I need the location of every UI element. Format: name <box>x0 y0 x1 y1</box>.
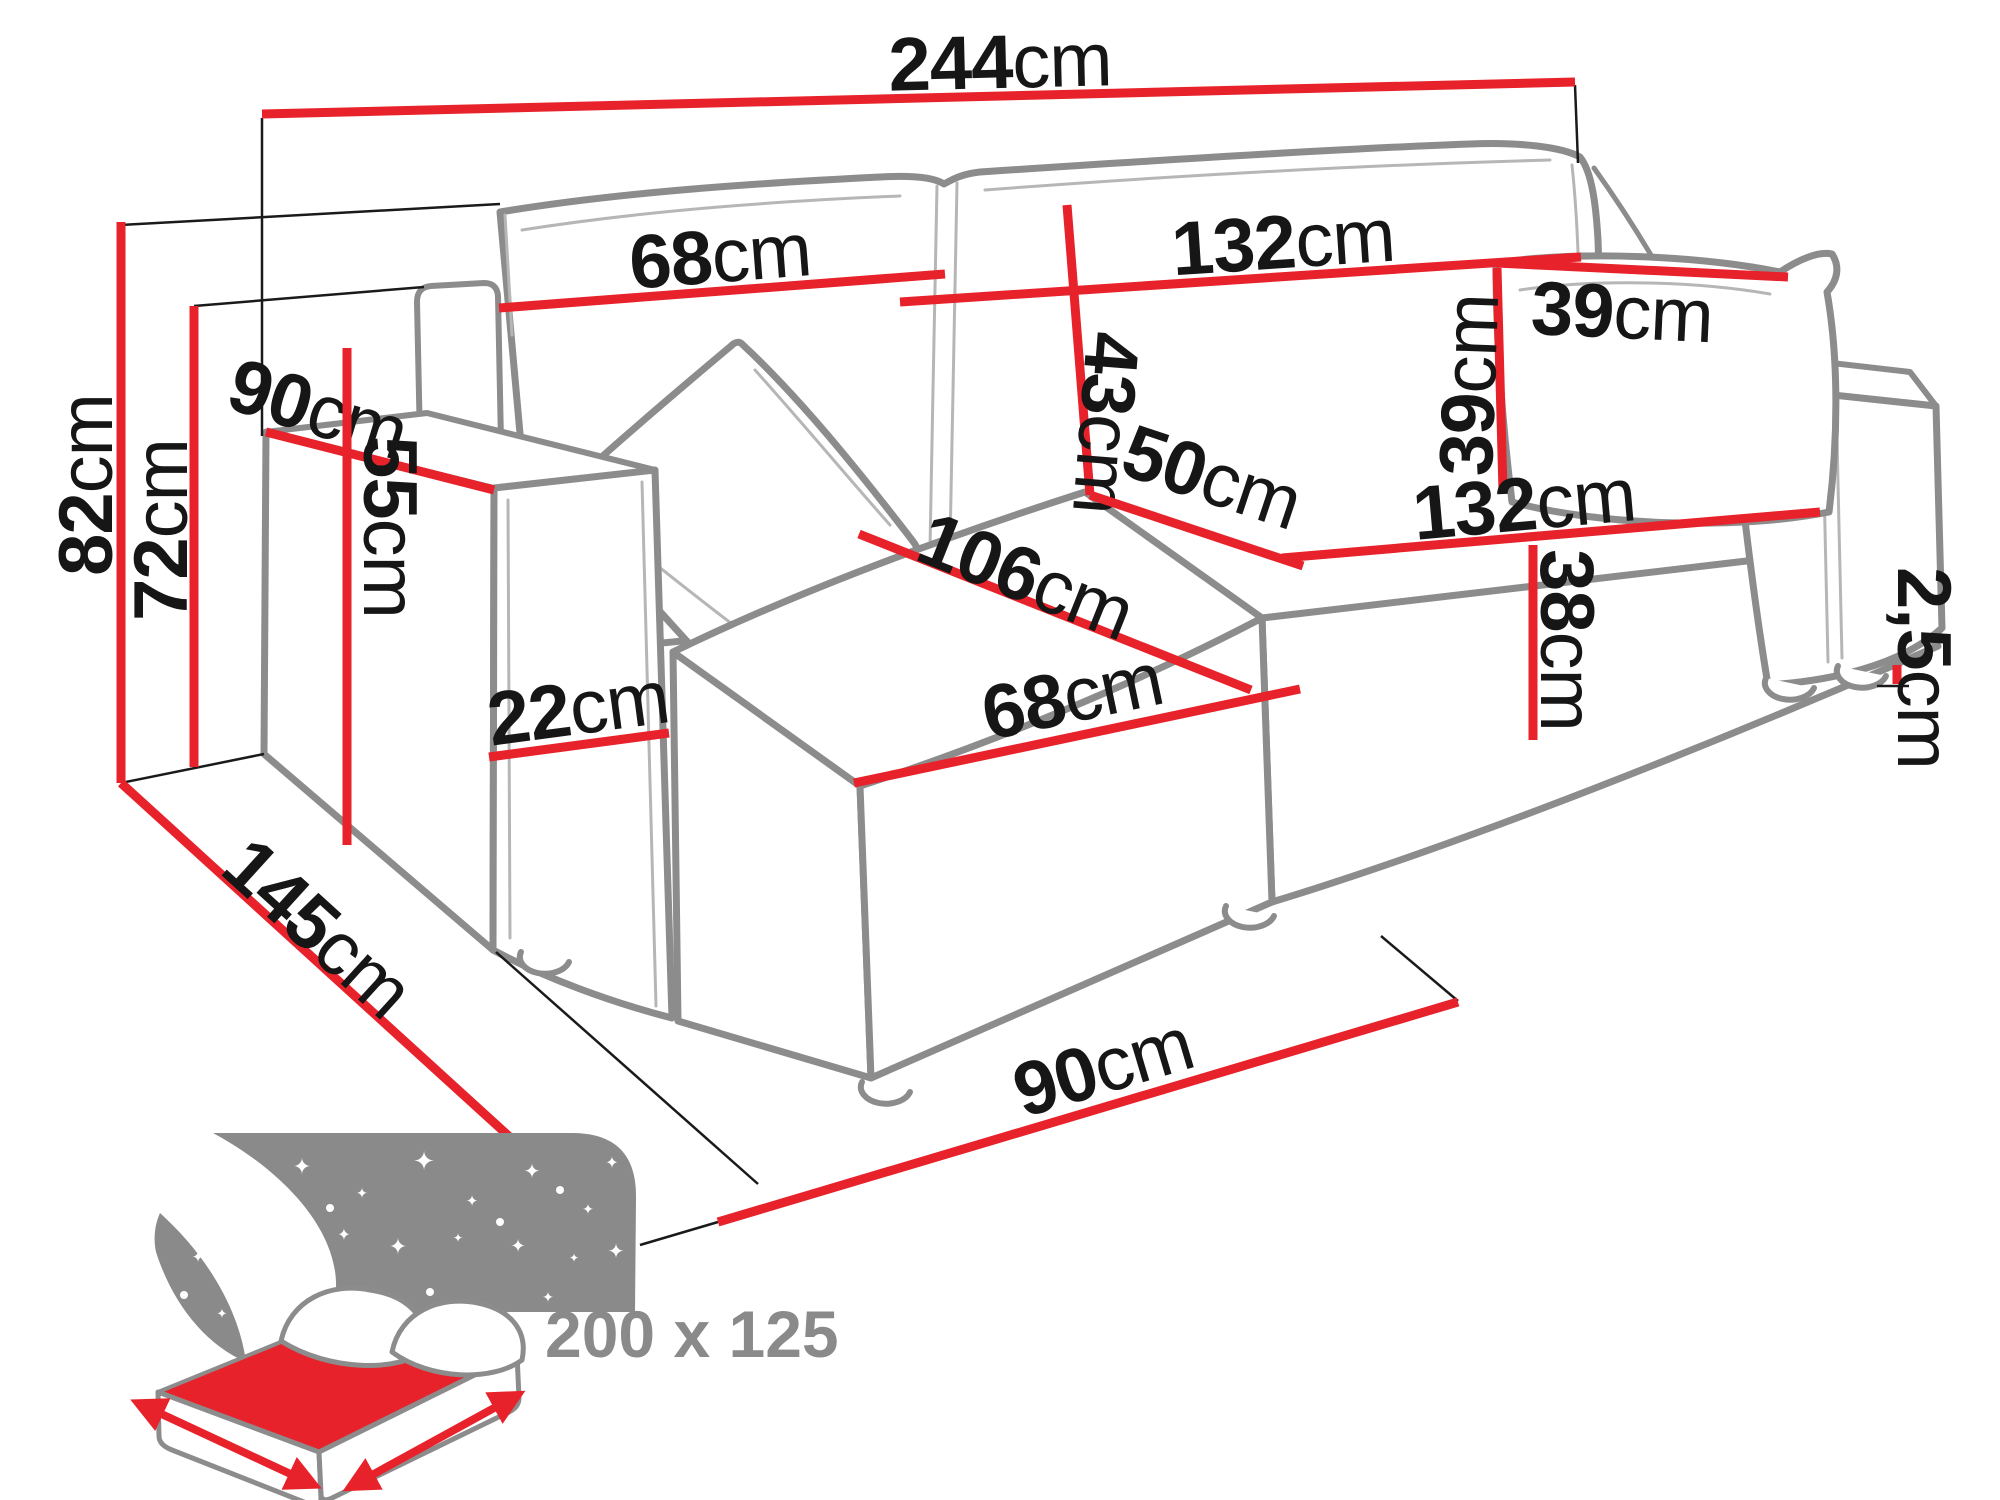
diagram-page: 244cm 68cm 132cm 43cm 39cm 39cm 90cm <box>0 0 2000 1500</box>
dimension-label: 55cm <box>348 436 433 618</box>
dimension-label: 38cm <box>1525 549 1610 731</box>
star-dot <box>496 1218 504 1226</box>
sofa-leg <box>861 1082 910 1104</box>
floor-line <box>1381 936 1458 1001</box>
dimension-label: 2,5cm <box>1882 567 1967 769</box>
star-icon: ✦ <box>510 1236 525 1257</box>
star-icon: ✦ <box>582 1202 594 1218</box>
star-icon: ✦ <box>453 1231 463 1245</box>
dimension-label: 39cm <box>1423 293 1514 478</box>
star-icon: ✦ <box>569 1251 579 1265</box>
floor-line <box>640 1222 718 1245</box>
dimension-label: 244cm <box>887 17 1112 107</box>
star-icon: ✦ <box>293 1155 311 1180</box>
dimension-label: 39cm <box>1529 265 1715 358</box>
dim-leg-height: 2,5cm <box>1877 567 1967 769</box>
dimension-label: 68cm <box>626 207 814 306</box>
star-icon: ✦ <box>217 1307 228 1322</box>
headboard-night-sky-crescent <box>155 1213 246 1362</box>
dim-cushion-height: 39cm <box>1423 268 1514 491</box>
dimension-label: 82cm <box>44 394 129 576</box>
dimension-label: 132cm <box>1169 192 1397 292</box>
star-icon: ✦ <box>608 1239 625 1263</box>
star-icon: ✦ <box>192 1248 205 1266</box>
star-icon: ✦ <box>356 1186 368 1202</box>
star-icon: ✦ <box>337 1225 350 1244</box>
sofa-dimensions-diagram: 244cm 68cm 132cm 43cm 39cm 39cm 90cm <box>0 0 2000 1500</box>
star-dot <box>426 1288 434 1296</box>
dim-seat-front-height: 38cm <box>1525 545 1610 740</box>
sleeping-size-label: 200 x 125 <box>545 1297 839 1371</box>
star-icon: ✦ <box>413 1147 435 1177</box>
extension-line <box>121 204 500 225</box>
star-icon: ✦ <box>466 1192 479 1210</box>
dimension-label: 90cm <box>1004 1000 1203 1133</box>
star-dot <box>326 1204 334 1212</box>
extension-line <box>194 287 424 306</box>
star-icon: ✦ <box>605 1153 618 1172</box>
star-dot <box>180 1291 188 1299</box>
star-icon: ✦ <box>524 1159 541 1183</box>
star-dot <box>556 1186 564 1194</box>
dimension-label: 72cm <box>119 439 204 621</box>
star-icon: ✦ <box>389 1235 407 1260</box>
